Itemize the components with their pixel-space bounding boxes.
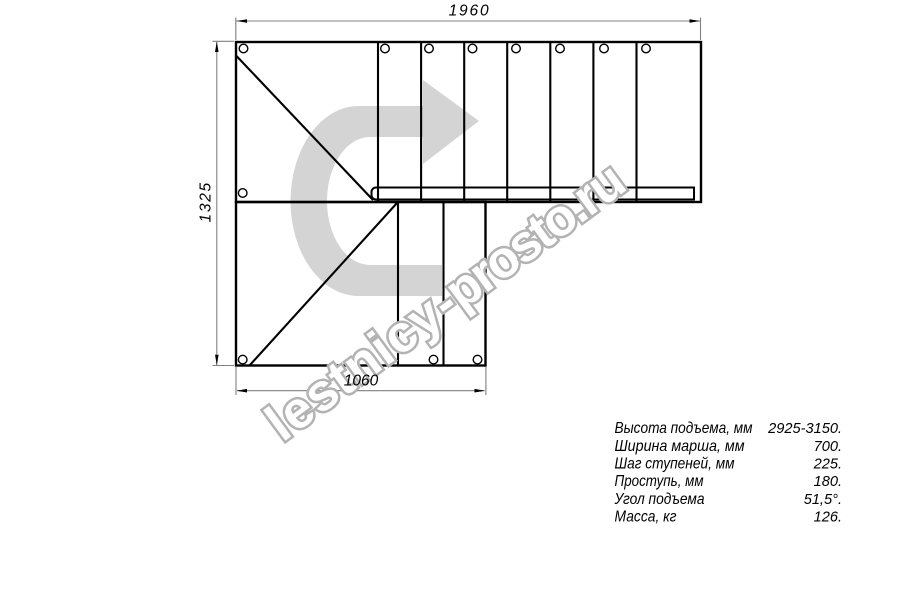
svg-text:Шаг ступеней, мм: Шаг ступеней, мм [615, 456, 735, 473]
svg-text:Проступь, мм: Проступь, мм [615, 473, 704, 490]
svg-text:1060: 1060 [344, 372, 379, 389]
svg-text:Угол подъема: Угол подъема [614, 491, 705, 508]
svg-text:126.: 126. [814, 510, 842, 526]
svg-text:180.: 180. [814, 474, 842, 490]
svg-text:Высота подъема, мм: Высота подъема, мм [615, 420, 753, 437]
svg-text:51,5°.: 51,5°. [804, 492, 842, 508]
svg-text:2925-3150.: 2925-3150. [767, 421, 842, 437]
svg-text:225.: 225. [813, 457, 842, 473]
svg-text:700.: 700. [814, 439, 842, 455]
svg-text:1960: 1960 [449, 3, 489, 20]
svg-text:Масса, кг: Масса, кг [615, 509, 677, 526]
svg-text:1325: 1325 [198, 182, 215, 222]
svg-text:Ширина марша, мм: Ширина марша, мм [615, 438, 745, 455]
